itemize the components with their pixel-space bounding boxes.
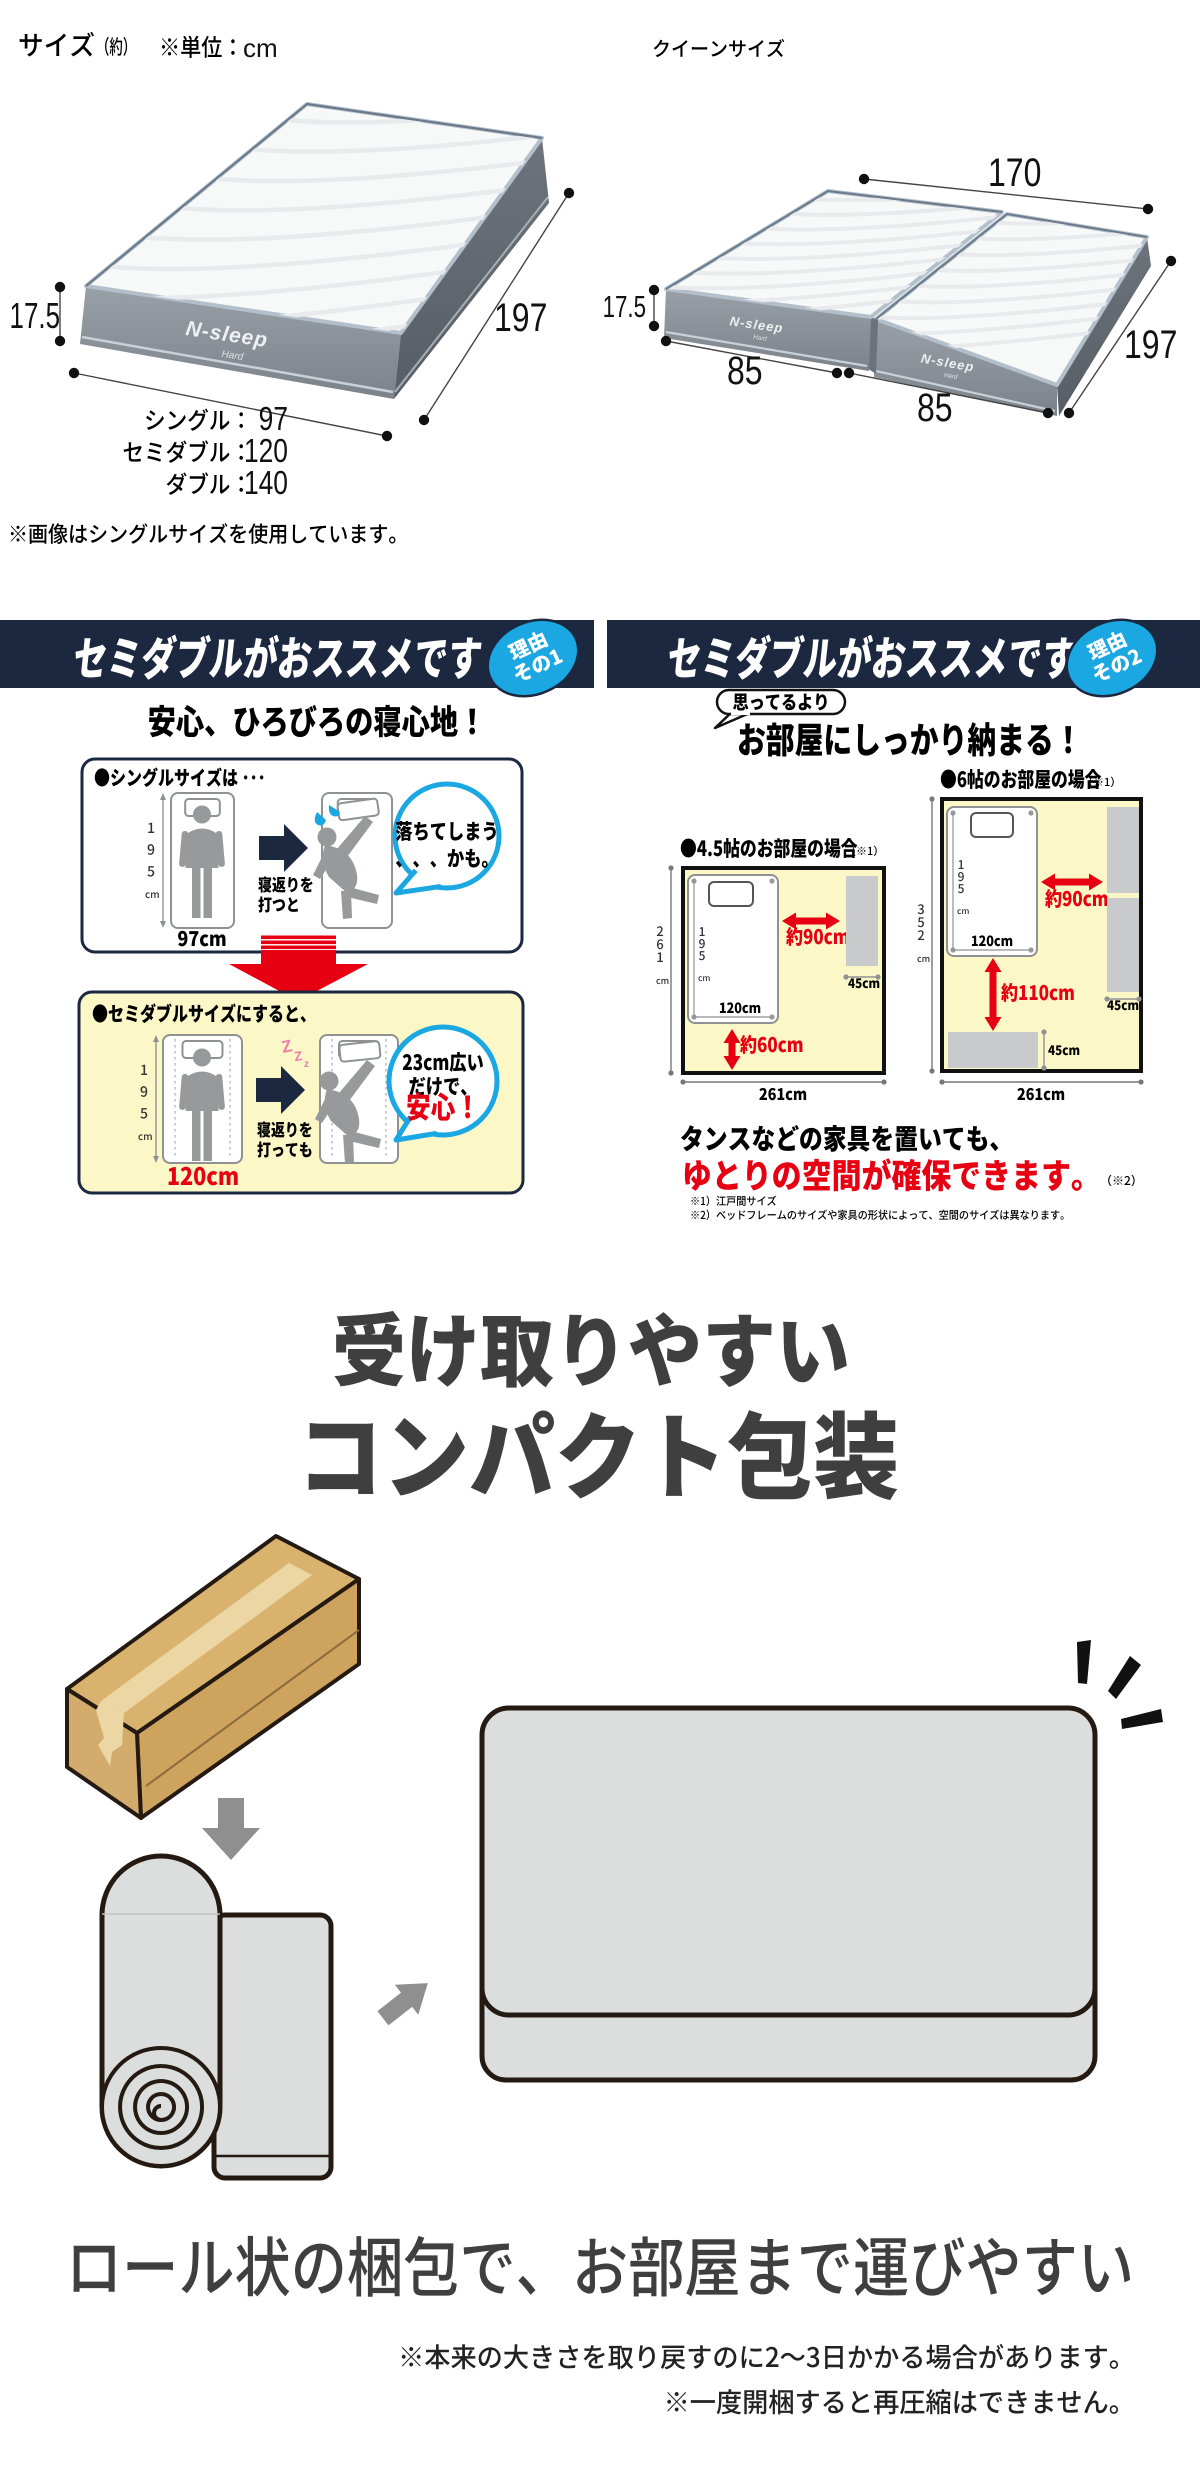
svg-text:97: 97 — [259, 401, 288, 437]
svg-text:120: 120 — [244, 433, 288, 469]
svg-text:17.5: 17.5 — [10, 296, 60, 336]
svg-text:140: 140 — [244, 465, 288, 501]
svg-text:17.5: 17.5 — [603, 289, 646, 323]
svg-text:cm: cm — [243, 33, 278, 63]
svg-text:197: 197 — [1124, 322, 1177, 367]
svg-text:170: 170 — [988, 150, 1041, 195]
svg-text:85: 85 — [727, 348, 763, 393]
svg-text:z: z — [304, 1059, 309, 1070]
svg-text:197: 197 — [494, 295, 547, 340]
svg-text:85: 85 — [917, 385, 953, 430]
